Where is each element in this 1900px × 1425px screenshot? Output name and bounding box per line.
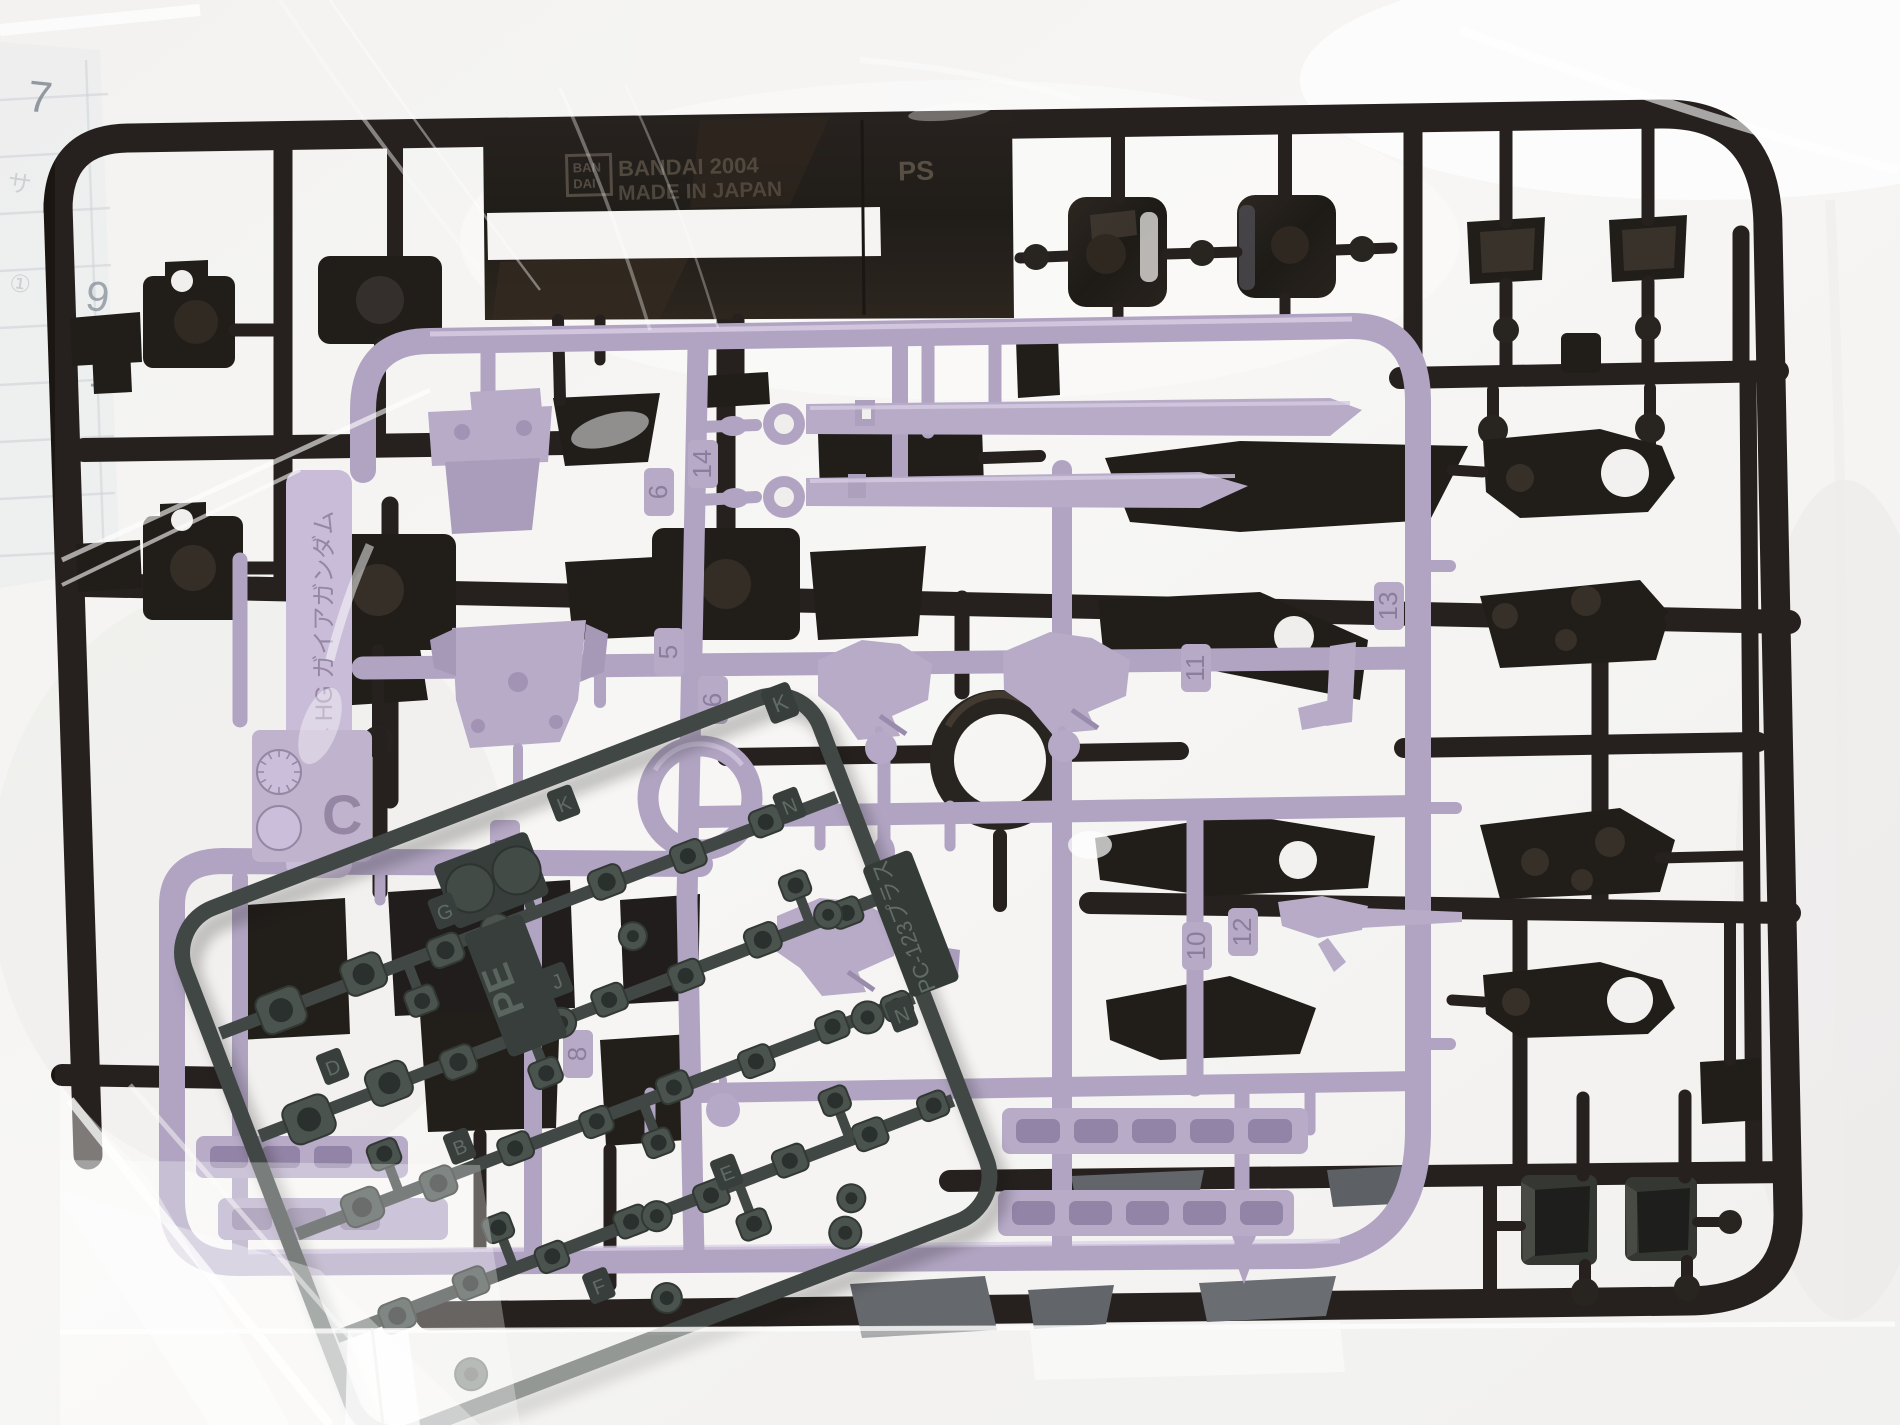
svg-text:7: 7 (25, 72, 54, 123)
svg-text:サ: サ (6, 169, 34, 199)
svg-text:①: ① (8, 270, 33, 300)
